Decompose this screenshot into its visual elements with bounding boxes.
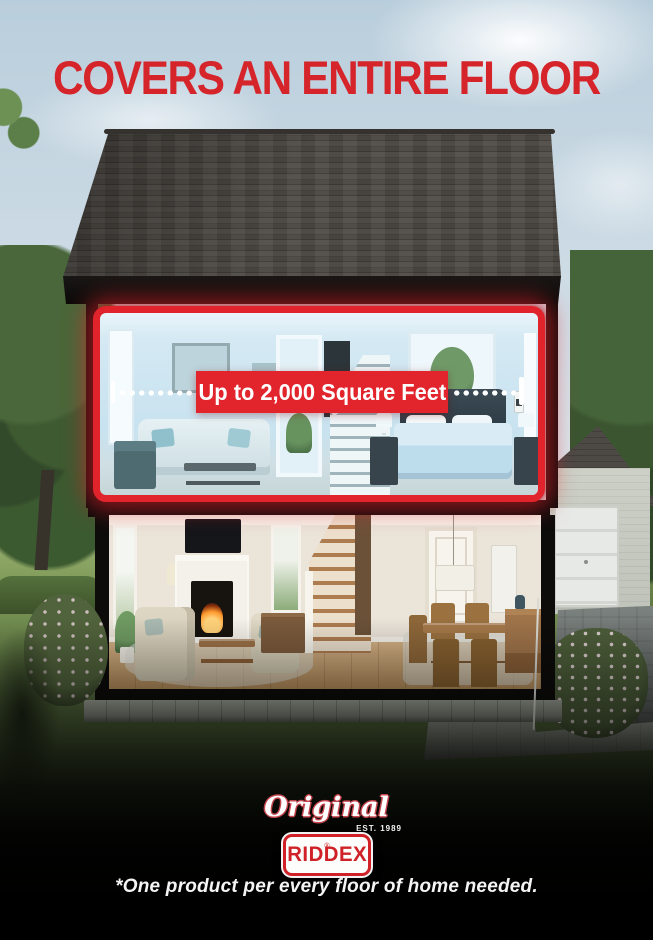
pillow <box>227 428 251 449</box>
window <box>524 333 536 447</box>
ad-poster: Up to 2,000 Square Feet COVERS AN ENTIRE… <box>0 0 653 940</box>
table-lamp <box>376 413 392 427</box>
house-roof <box>63 130 561 277</box>
garage-door-handle <box>584 560 588 564</box>
headline: COVERS AN ENTIRE FLOOR <box>33 50 621 105</box>
coverage-line-endcap <box>111 381 115 403</box>
bed <box>394 423 512 479</box>
pendant-light <box>435 565 475 591</box>
pendant-cord <box>453 515 454 567</box>
roof-fascia <box>63 276 561 304</box>
logo-original-script: Original <box>0 792 653 823</box>
coverage-banner-label: Up to 2,000 Square Feet <box>198 379 446 406</box>
riddex-badge: RIDDEX® <box>283 834 371 876</box>
coverage-dotted-line <box>452 389 516 397</box>
coffee-table <box>184 463 256 471</box>
side-table <box>114 441 156 489</box>
vase <box>515 595 525 609</box>
logo-est-text: EST. 1989 <box>252 824 402 833</box>
nightstand <box>370 437 398 485</box>
refrigerator <box>491 545 517 613</box>
cutaway-wall-right <box>546 300 558 508</box>
registered-mark: ® <box>324 843 329 850</box>
tv <box>185 519 241 553</box>
window <box>271 525 301 613</box>
roof-ridge <box>104 129 555 134</box>
table-lamp <box>518 413 534 427</box>
potted-plant <box>286 413 312 453</box>
stair-wall <box>355 515 371 635</box>
disclaimer-text: *One product per every floor of home nee… <box>0 876 653 898</box>
nightstand <box>514 437 538 485</box>
coverage-dotted-line <box>118 389 194 397</box>
coverage-line-endcap <box>519 377 524 405</box>
garage-door <box>554 506 619 607</box>
coverage-banner: Up to 2,000 Square Feet <box>196 371 448 413</box>
